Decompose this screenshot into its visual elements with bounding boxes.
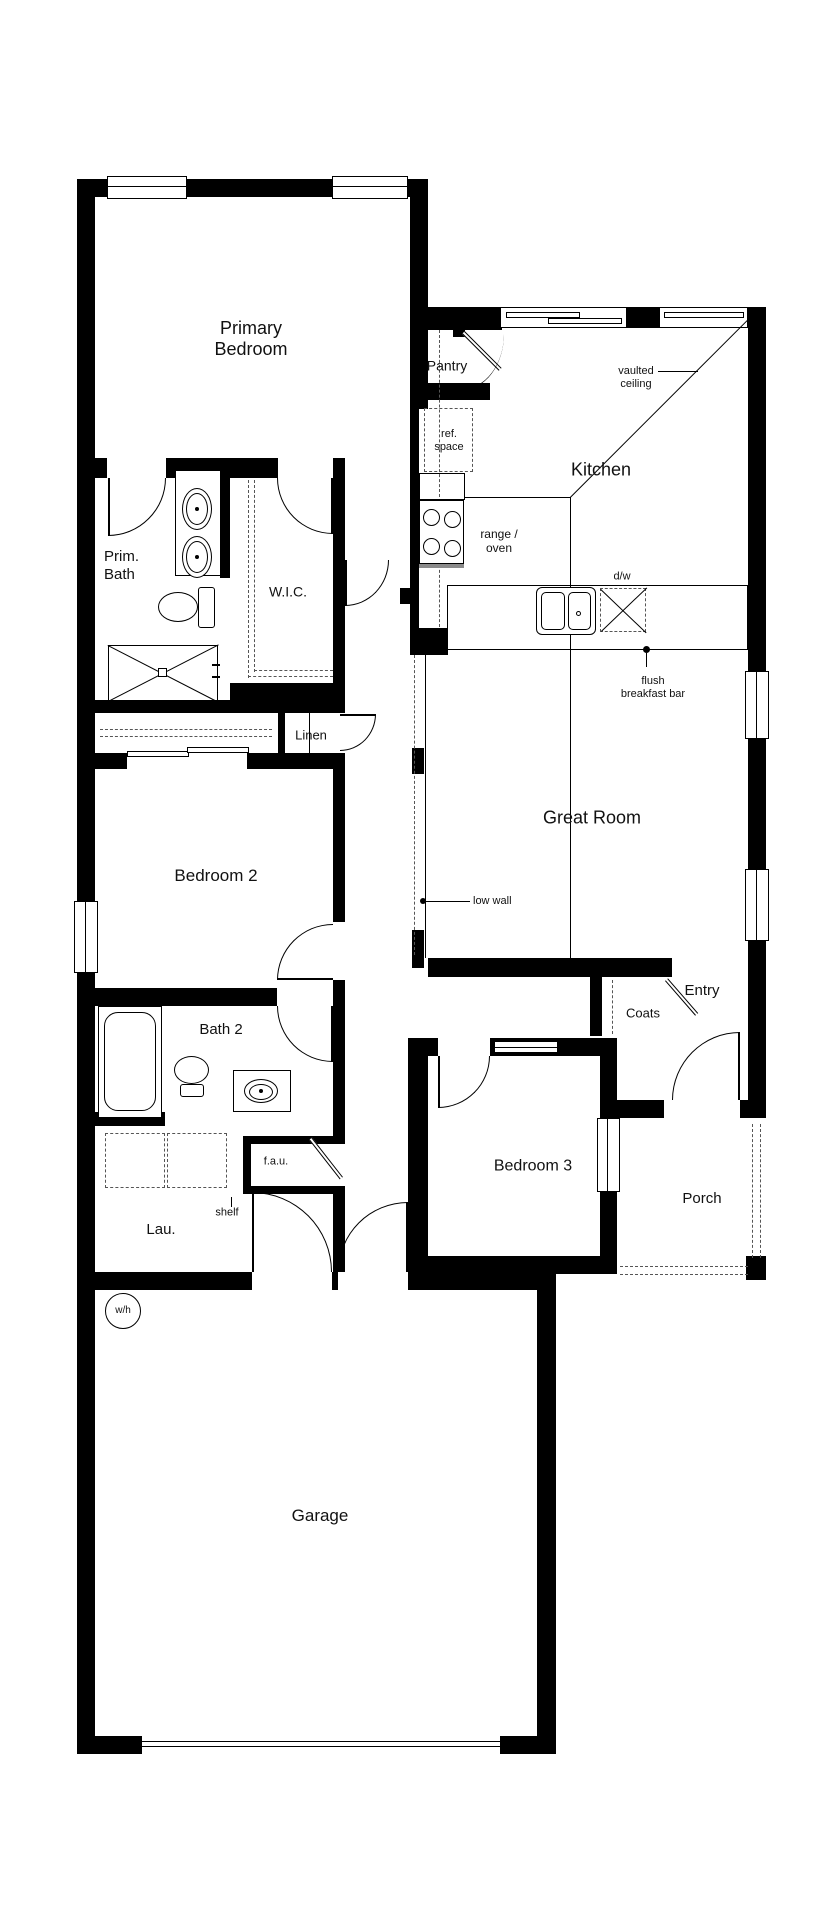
wall [77, 1272, 252, 1290]
closet-shelf-line [254, 670, 333, 671]
closet-shelf-line [254, 480, 255, 672]
annotation-shelf: shelf [202, 1207, 252, 1220]
wall [408, 1038, 428, 1256]
wall [400, 588, 412, 604]
window [548, 318, 622, 324]
window [597, 1118, 620, 1192]
sliding-closet-door [127, 751, 189, 757]
wall [247, 753, 278, 769]
porch-edge-line [760, 1124, 761, 1258]
door-swing-garage-a [252, 1192, 332, 1272]
window [332, 176, 408, 199]
wall [332, 1272, 338, 1290]
breakfast-bar-leader-dot [643, 646, 650, 653]
wall [77, 1736, 142, 1754]
door-swing-front-door [672, 1032, 740, 1100]
garage-door-line [142, 1741, 500, 1742]
door-swing-linen [340, 714, 376, 751]
sliding-closet-door [187, 747, 249, 753]
annotation-dw: d/w [602, 571, 642, 584]
floor-plan: Primary Bedroom Pantry vaulted ceiling r… [0, 0, 840, 1927]
wall [408, 1272, 556, 1290]
drain-dot [195, 555, 199, 559]
room-label-entry: Entry [662, 982, 742, 1000]
kitchen-peninsula-counter [447, 585, 748, 650]
room-label-wic: W.I.C. [253, 584, 323, 601]
faucet-dot [576, 611, 581, 616]
annotation-low-wall: low wall [473, 895, 543, 908]
wall [333, 769, 345, 922]
room-label-great-room: Great Room [492, 807, 692, 828]
toilet-tank [198, 587, 215, 628]
wall [333, 458, 345, 478]
garage-door-line [142, 1746, 500, 1747]
door-swing-prim-bath [108, 478, 166, 536]
window [664, 312, 744, 318]
annotation-flush-breakfast-bar: flush breakfast bar [620, 675, 686, 701]
wall [617, 1100, 664, 1118]
room-label-bedroom2: Bedroom 2 [136, 866, 296, 886]
drain-dot [195, 507, 199, 511]
wall [590, 977, 602, 1036]
closet-rod-line [248, 676, 333, 677]
room-label-lau: Lau. [131, 1221, 191, 1239]
door-swing-bedroom2 [277, 924, 333, 980]
room-label-linen: Linen [281, 727, 341, 742]
room-label-porch: Porch [662, 1190, 742, 1208]
wall [410, 628, 448, 655]
shower-valve [212, 664, 220, 666]
wall [537, 1272, 556, 1754]
drain-dot [259, 1089, 263, 1093]
door-swing-bedroom3 [438, 1056, 490, 1108]
kitchen-counter [419, 473, 465, 500]
low-wall-leader-line [426, 901, 470, 902]
burner [423, 509, 440, 526]
window [494, 1041, 558, 1053]
shelf-leader-line [231, 1197, 232, 1207]
ceiling-ridge-line [570, 497, 571, 959]
porch-edge-line [752, 1124, 753, 1258]
wall [333, 478, 345, 713]
breakfast-bar-leader-line [646, 653, 647, 667]
wall [230, 683, 333, 700]
sink-basin [541, 592, 565, 630]
wall [220, 478, 230, 578]
wall [410, 409, 419, 655]
closet-shelf-line [100, 736, 272, 737]
wall [243, 1136, 251, 1194]
wall [740, 1100, 766, 1118]
room-label-coats: Coats [613, 1005, 673, 1020]
wall [428, 1038, 438, 1056]
window [107, 176, 187, 199]
room-label-primary-bedroom: Primary Bedroom [181, 318, 321, 360]
cabinet-centerline [439, 565, 440, 627]
wall [428, 958, 672, 977]
annotation-range-oven: range / oven [467, 527, 531, 555]
toilet-tank [180, 1084, 204, 1097]
toilet-bowl [174, 1056, 209, 1084]
wall [95, 988, 277, 1006]
room-label-pantry: Pantry [402, 358, 492, 375]
annotation-ref-space: ref. space [425, 428, 473, 454]
closet-rod-line [248, 480, 249, 678]
toilet-bowl [158, 592, 198, 622]
annotation-wh: w/h [105, 1305, 141, 1317]
wall [410, 179, 428, 409]
dryer-space [167, 1133, 227, 1188]
room-label-bedroom3: Bedroom 3 [458, 1158, 608, 1177]
wall [333, 1112, 345, 1136]
door-swing-hall [345, 560, 389, 606]
wall [333, 980, 345, 1112]
wall [746, 1256, 766, 1280]
burner [444, 511, 461, 528]
burner [444, 540, 461, 557]
door-swing-garage-b [338, 1202, 408, 1272]
low-wall-line [425, 655, 426, 958]
burner [423, 538, 440, 555]
annotation-vaulted-ceiling: vaulted ceiling [606, 365, 666, 391]
room-label-prim-bath: Prim. Bath [104, 548, 174, 583]
wall [95, 458, 107, 478]
annotation-fau: f.a.u. [251, 1156, 301, 1169]
bathtub-inner [104, 1012, 156, 1111]
room-label-bath2: Bath 2 [181, 1021, 261, 1039]
room-label-kitchen: Kitchen [541, 459, 661, 480]
porch-edge-line [620, 1266, 748, 1267]
window [745, 869, 769, 941]
room-label-garage: Garage [260, 1506, 380, 1526]
door-swing-wic [277, 478, 333, 534]
window [74, 901, 98, 973]
wall [243, 1136, 345, 1144]
range-shadow [419, 564, 464, 568]
closet-rod-line [100, 729, 272, 730]
low-wall-dashed-line [414, 655, 415, 955]
shower-drain [158, 668, 167, 677]
wall [95, 753, 127, 769]
door-swing-bath2 [277, 1006, 333, 1062]
shower-valve [212, 676, 220, 678]
wall [278, 753, 345, 769]
washer-space [105, 1133, 165, 1188]
window [745, 671, 769, 739]
kitchen-counter-edge [465, 497, 570, 498]
porch-edge-line [620, 1274, 748, 1275]
wall [626, 307, 660, 328]
